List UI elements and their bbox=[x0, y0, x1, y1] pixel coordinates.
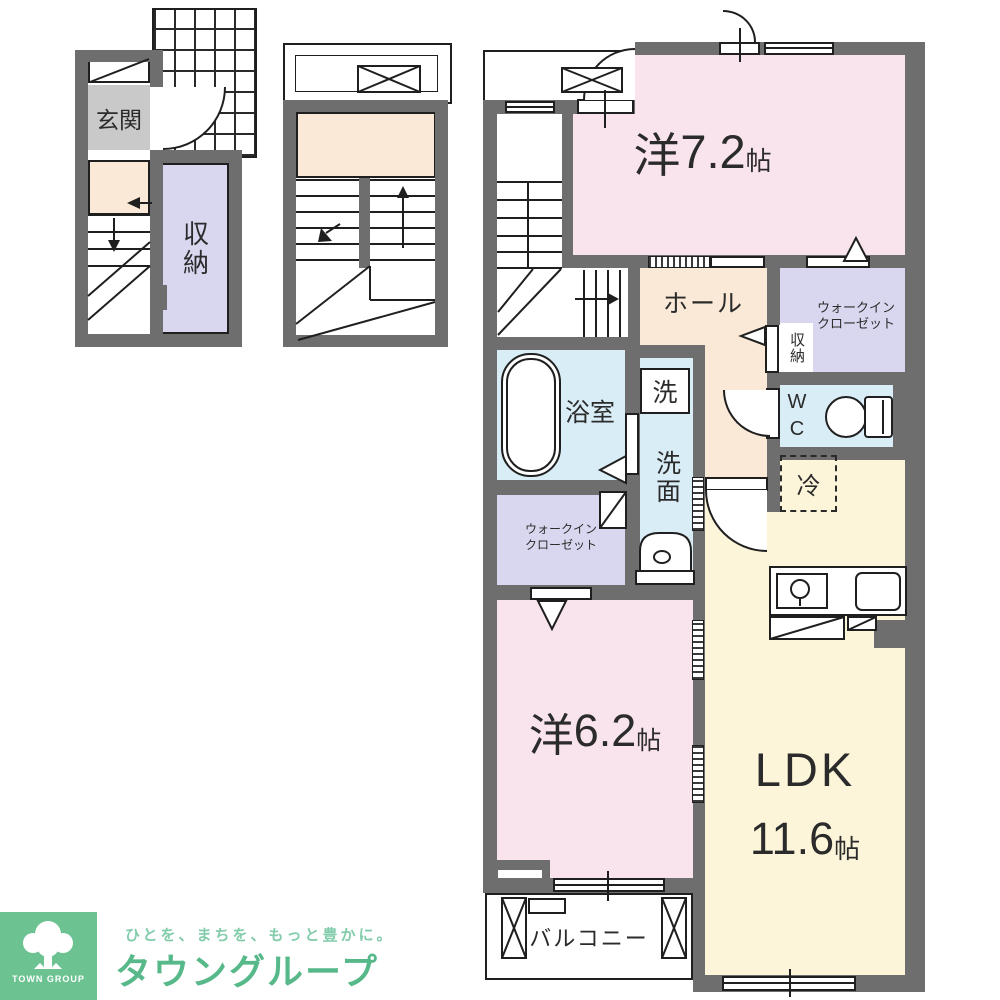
sliding-door bbox=[710, 256, 765, 268]
balcony-fixture bbox=[528, 898, 566, 914]
wall bbox=[435, 100, 448, 347]
wall bbox=[767, 268, 780, 325]
logo-tagline: ひとを、まちを、もっと豊かに。 bbox=[125, 924, 395, 945]
wall bbox=[483, 480, 625, 495]
wall bbox=[483, 585, 705, 600]
sliding-door-track bbox=[692, 620, 704, 680]
door-opening bbox=[150, 87, 164, 150]
hall-label: ホール bbox=[640, 282, 767, 322]
window bbox=[764, 42, 834, 55]
logo-mark-text: TOWN GROUP bbox=[12, 974, 85, 984]
wall bbox=[150, 285, 167, 310]
sliding-door-track bbox=[692, 477, 704, 531]
tree-icon bbox=[0, 912, 97, 976]
wall bbox=[75, 50, 152, 62]
wall bbox=[150, 50, 163, 87]
washroom-label: 洗面 bbox=[640, 425, 693, 530]
landing-1f bbox=[88, 160, 150, 215]
wall-vent bbox=[498, 870, 542, 878]
room-genkan: 玄関 bbox=[88, 85, 150, 150]
stair-landing-2f bbox=[296, 112, 436, 178]
ldk-window bbox=[722, 976, 856, 991]
bath-door-leaf bbox=[625, 413, 639, 475]
storage-1f-label: 収納 bbox=[177, 220, 214, 278]
genkan-label: 玄関 bbox=[96, 101, 142, 135]
balcony-window bbox=[553, 878, 665, 892]
closet-opening bbox=[806, 256, 870, 268]
wall bbox=[562, 112, 573, 257]
wall bbox=[483, 337, 640, 350]
wall bbox=[767, 372, 905, 385]
bath-label: 浴室 bbox=[554, 394, 626, 428]
balcony: バルコニー bbox=[485, 893, 693, 980]
wall bbox=[483, 100, 497, 893]
washer-space: 洗 bbox=[640, 368, 690, 414]
stairwell-porch-inner bbox=[295, 55, 438, 92]
wall bbox=[905, 42, 925, 992]
wall bbox=[75, 334, 242, 347]
fridge-space: 冷 bbox=[780, 455, 837, 512]
storage-door bbox=[765, 325, 779, 373]
wall bbox=[283, 335, 448, 347]
exterior-door-arc bbox=[723, 10, 756, 42]
room-storage-1f: 収納 bbox=[161, 163, 229, 334]
wall bbox=[75, 50, 88, 347]
town-group-logo: TOWN GROUP bbox=[0, 912, 97, 1000]
unit-entrance-door bbox=[577, 99, 634, 114]
floorplan-page: 玄関 収納 収納 bbox=[0, 0, 1000, 1000]
exterior-door-threshold bbox=[719, 42, 760, 55]
bedroom-door-opening bbox=[530, 587, 592, 600]
ldk-label: LDK bbox=[705, 740, 905, 798]
window bbox=[505, 101, 555, 113]
stair-divider-wall bbox=[359, 178, 370, 268]
wall bbox=[229, 152, 242, 347]
ldk-size-label: 11.6帖 bbox=[705, 810, 905, 868]
wall bbox=[283, 100, 296, 347]
wall bbox=[767, 447, 780, 512]
ldk-door-leaf bbox=[705, 477, 768, 491]
logo-brand: タウングループ bbox=[115, 943, 379, 995]
sliding-door bbox=[648, 256, 710, 268]
wall bbox=[893, 372, 905, 460]
balcony-label: バルコニー bbox=[529, 921, 649, 953]
room-72-label: 洋7.2帖 bbox=[580, 118, 825, 184]
walkin-closet-lower-label: ウォークインクローゼット bbox=[497, 516, 625, 560]
wall bbox=[874, 620, 905, 648]
walkin-closet-upper-label: ウォークインクローゼット bbox=[806, 296, 906, 336]
washer-label: 洗 bbox=[652, 373, 677, 409]
room-62-label: 洋6.2帖 bbox=[497, 698, 693, 764]
wall bbox=[283, 100, 448, 112]
fridge-label: 冷 bbox=[797, 466, 821, 501]
wc-label: WC bbox=[782, 386, 812, 446]
storage-main-label: 収納 bbox=[786, 332, 807, 364]
sliding-door-track bbox=[692, 745, 704, 803]
